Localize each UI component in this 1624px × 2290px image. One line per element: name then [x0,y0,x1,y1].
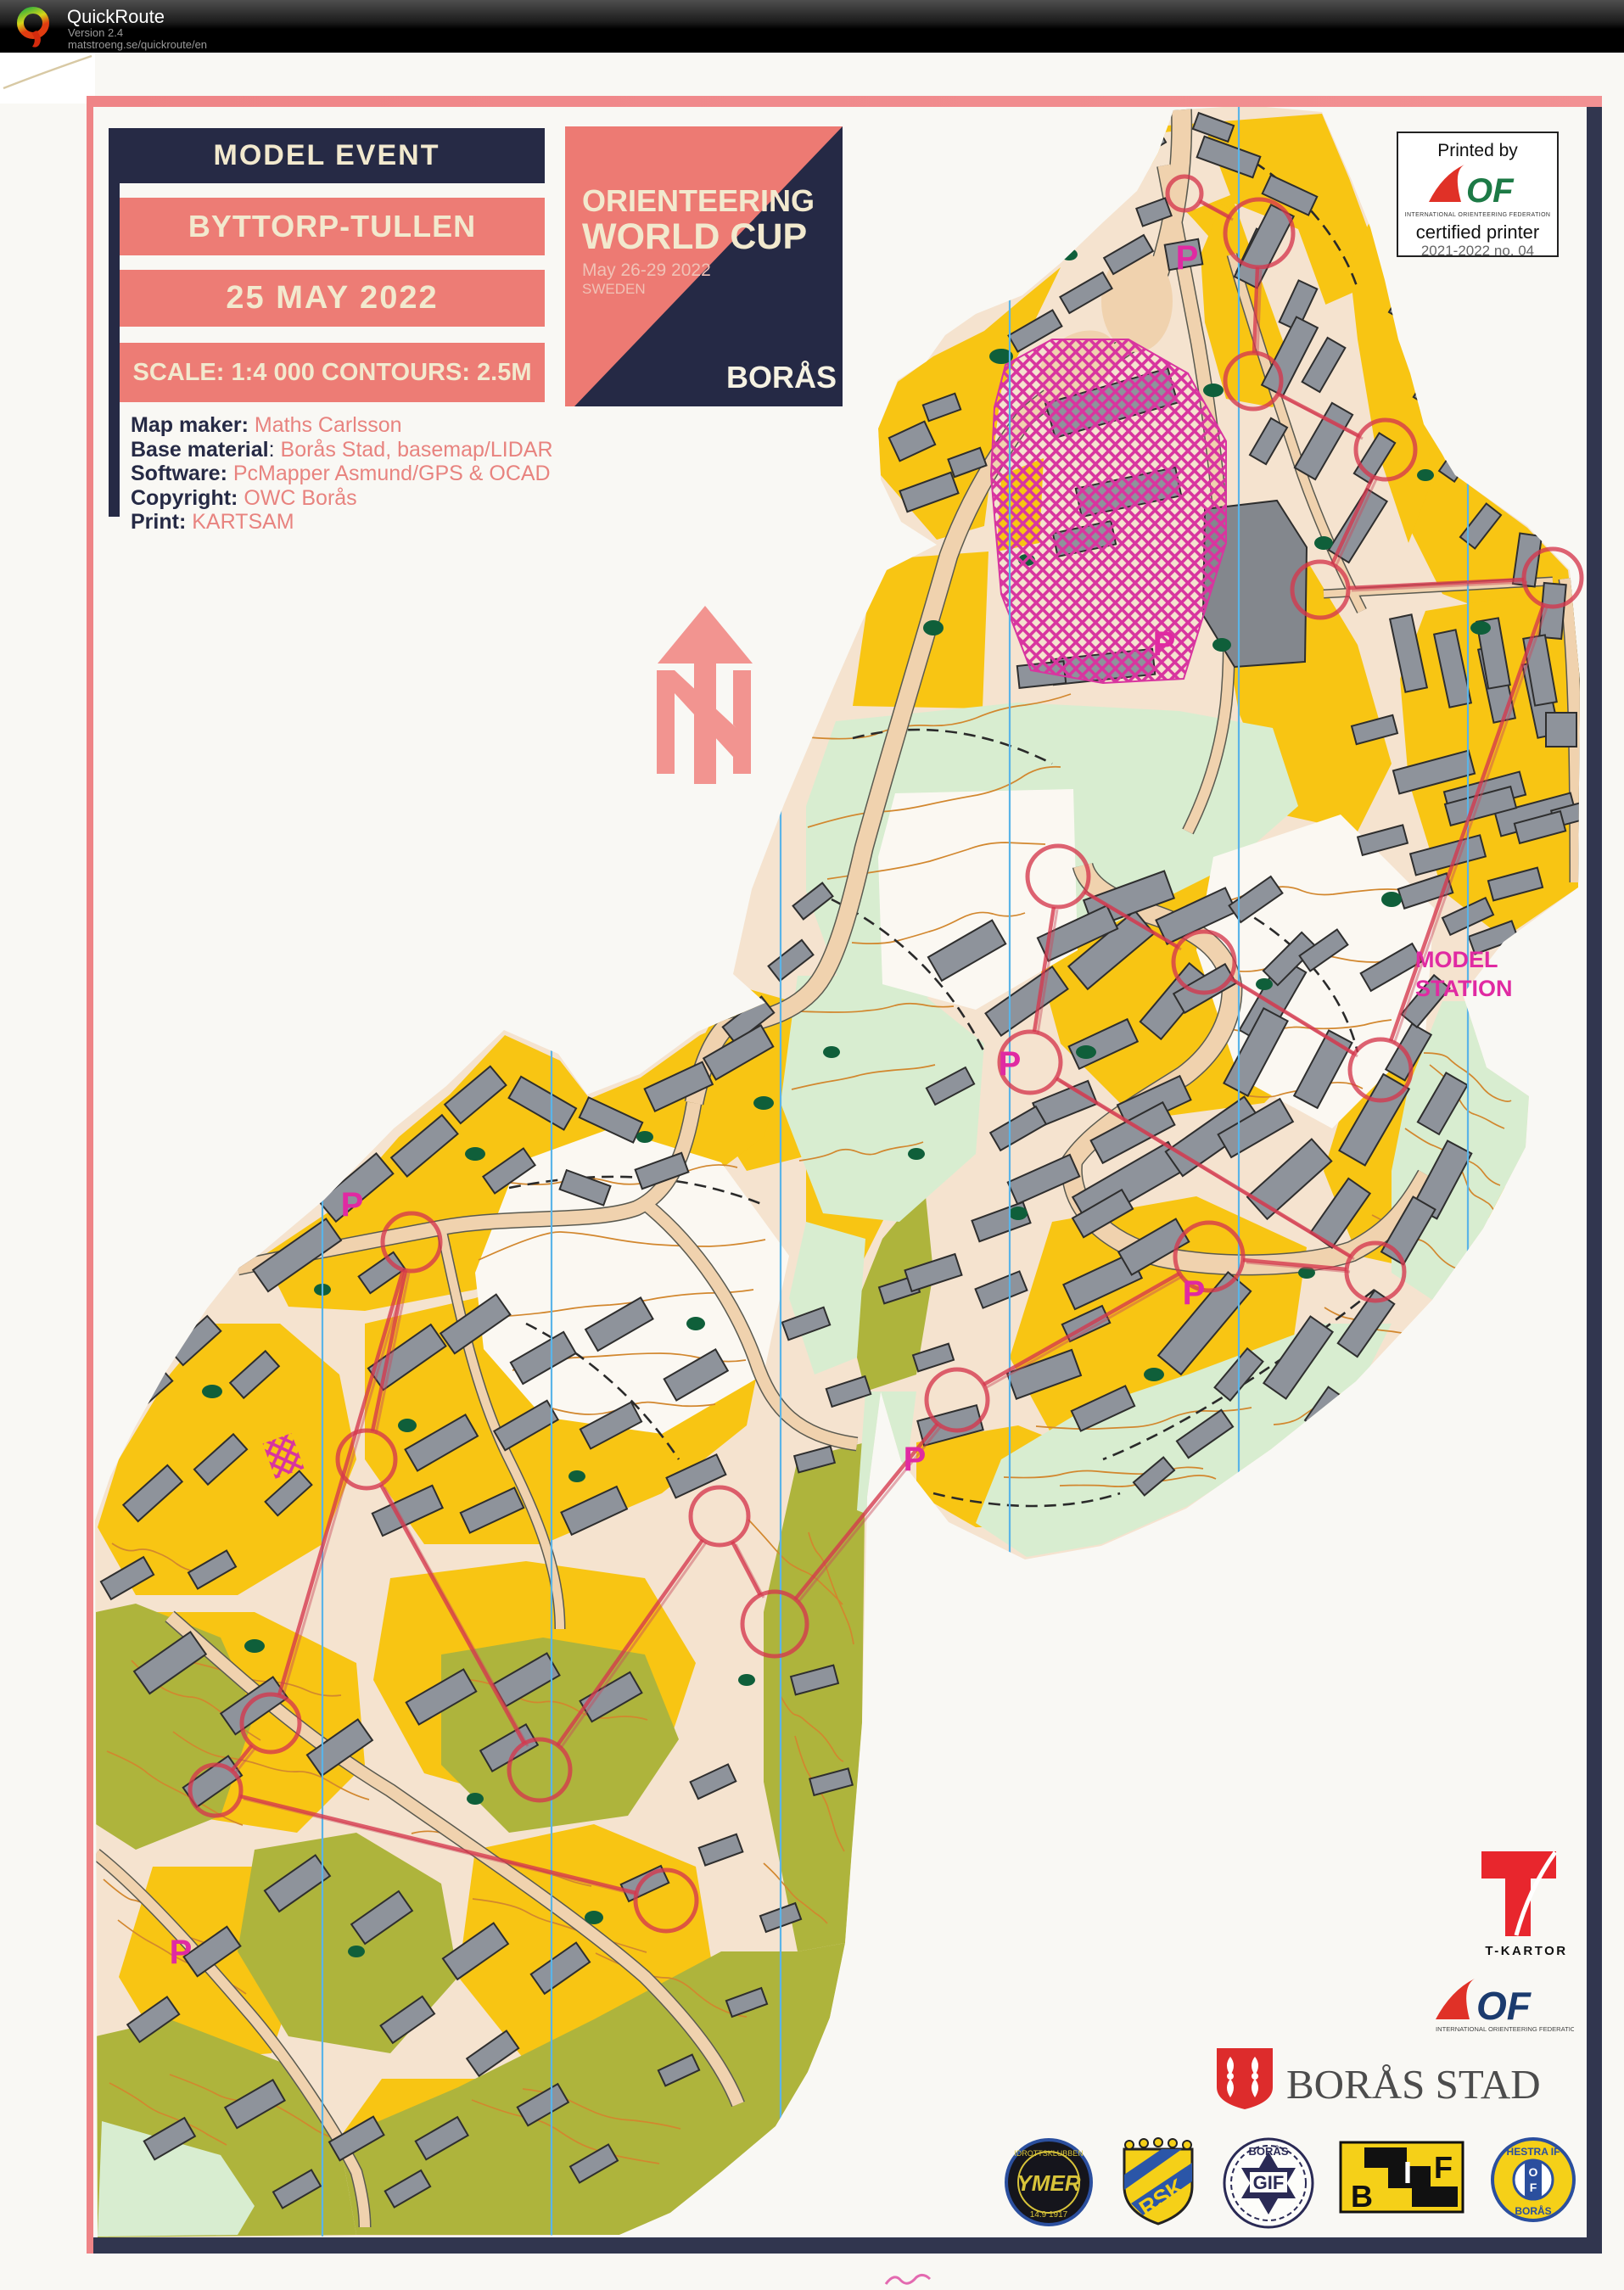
svg-text:IDROTTSKLUBBEN: IDROTTSKLUBBEN [1014,2149,1084,2158]
svg-text:14.9 1917: 14.9 1917 [1030,2210,1068,2220]
svg-text:OF: OF [1476,1984,1532,2028]
svg-text:INTERNATIONAL ORIENTEERING FED: INTERNATIONAL ORIENTEERING FEDERATION [1436,2025,1574,2033]
svg-text:WORLD CUP: WORLD CUP [582,216,807,257]
svg-text:P: P [170,1934,193,1971]
svg-text:P: P [999,1045,1022,1083]
svg-text:BORÅS: BORÅS [726,360,837,395]
svg-text:May 26-29 2022: May 26-29 2022 [582,260,711,280]
svg-text:P: P [1153,625,1176,663]
svg-text:HESTRA IF: HESTRA IF [1507,2146,1560,2158]
svg-text:ORIENTEERING: ORIENTEERING [582,183,815,218]
svg-text:GIF: GIF [1253,2172,1285,2193]
svg-text:P: P [904,1441,927,1478]
svg-text:F: F [1530,2181,1537,2194]
svg-text:I: I [1403,2155,1412,2190]
svg-text:P: P [1176,239,1199,277]
svg-text:YMER: YMER [1016,2170,1080,2196]
svg-text:MODEL: MODEL [1415,947,1498,972]
svg-text:F: F [1434,2150,1453,2185]
svg-text:STATION: STATION [1415,976,1513,1001]
svg-text:SWEDEN: SWEDEN [582,281,646,297]
svg-text:P: P [341,1186,364,1223]
svg-text:O: O [1529,2165,1538,2179]
svg-text:P: P [1183,1274,1206,1312]
svg-text:B: B [1351,2179,1373,2214]
svg-text:BORÅS: BORÅS [1515,2204,1551,2217]
svg-text:OF: OF [1466,172,1515,210]
